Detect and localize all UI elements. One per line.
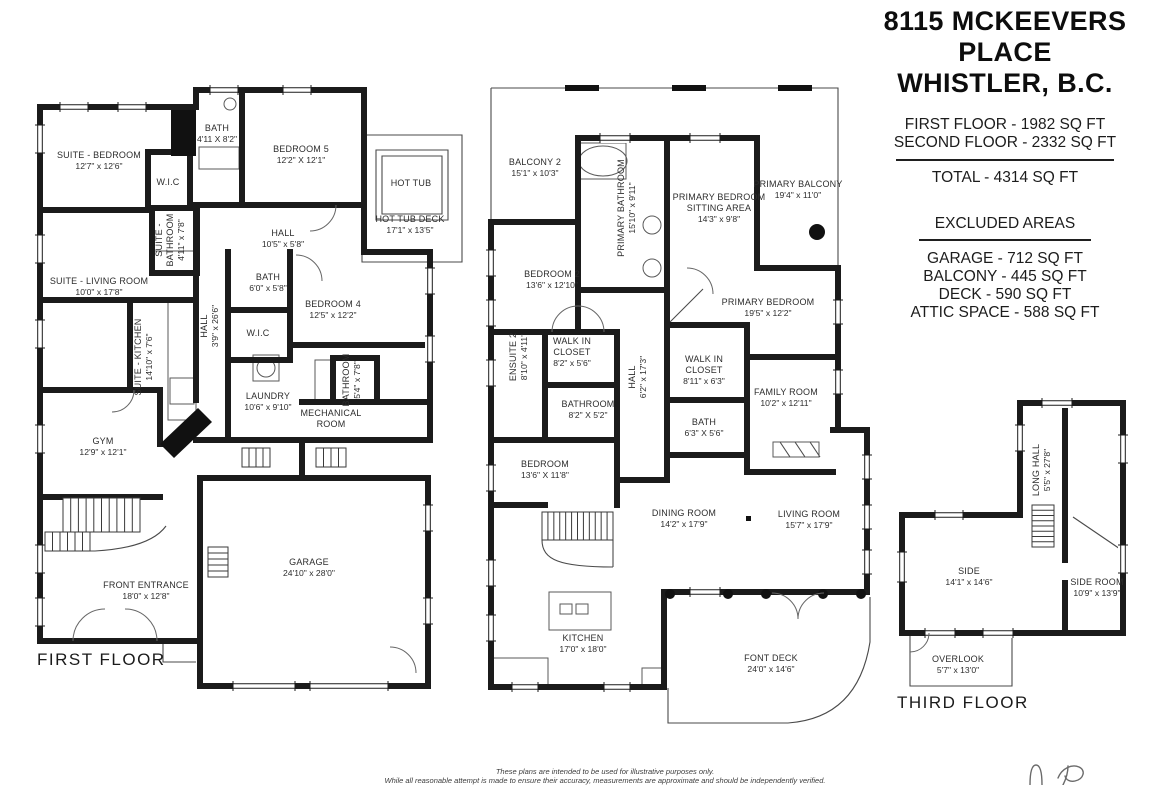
excluded-garage: GARAGE - 712 SQ FT <box>842 250 1168 268</box>
room-label: SIDE ROOM <box>1070 577 1123 587</box>
room-dimensions: 8'2" x 5'6" <box>553 358 591 368</box>
room-label: SUITE - BEDROOM <box>57 150 141 160</box>
room-dimensions: 15'1" x 10'3" <box>511 168 558 178</box>
room-label: PRIMARY BEDROOM <box>673 192 766 202</box>
excluded-attic: ATTIC SPACE - 588 SQ FT <box>842 304 1168 322</box>
excluded-balcony: BALCONY - 445 SQ FT <box>842 268 1168 286</box>
title-block: 8115 MCKEEVERS PLACE WHISTLER, B.C. FIRS… <box>842 6 1168 322</box>
room-label: SIDE <box>958 566 980 576</box>
property-address: 8115 MCKEEVERS PLACE <box>842 6 1168 68</box>
room-label: DINING ROOM <box>652 508 716 518</box>
room-label: KITCHEN <box>563 633 604 643</box>
room-dimensions: 4'11" x 7'8" <box>176 219 186 261</box>
room-label: SITTING AREA <box>687 203 751 213</box>
floor-plan-sheet: SUITE - BEDROOM12'7" x 12'6"W.I.CBATH4'1… <box>0 0 1170 785</box>
total-area: TOTAL - 4314 SQ FT <box>842 169 1168 187</box>
room-label: HOT TUB DECK <box>375 214 444 224</box>
room-label: FAMILY ROOM <box>754 387 818 397</box>
room-dimensions: 14'10" x 7'6" <box>144 333 154 380</box>
room-dimensions: 17'1" x 13'5" <box>386 225 433 235</box>
signature-mark <box>1030 765 1083 785</box>
room-dimensions: 14'1" x 14'6" <box>945 577 992 587</box>
property-city: WHISTLER, B.C. <box>842 68 1168 99</box>
room-label: WALK IN <box>553 336 591 346</box>
room-label: FONT DECK <box>744 653 798 663</box>
room-dimensions: 5'5" x 27'8" <box>1042 449 1052 491</box>
excluded-deck: DECK - 590 SQ FT <box>842 286 1168 304</box>
floor-label: FIRST FLOOR <box>37 650 166 669</box>
room-dimensions: 12'2" X 12'1" <box>277 155 326 165</box>
room-label: BATHROOM <box>165 214 175 267</box>
room-label: BALCONY 2 <box>509 157 561 167</box>
room-dimensions: 18'0" x 12'8" <box>122 591 169 601</box>
room-dimensions: 10'6" x 9'10" <box>244 402 291 412</box>
room-dimensions: 6'0" x 5'8" <box>249 283 287 293</box>
room-label: BATHROOM <box>562 399 615 409</box>
room-label: FRONT ENTRANCE <box>103 580 189 590</box>
room-dimensions: 19'4" x 11'0" <box>775 190 822 200</box>
room-label: HALL <box>271 228 294 238</box>
room-dimensions: 15'7" x 17'9" <box>785 520 832 530</box>
room-dimensions: 12'5" x 12'2" <box>309 310 356 320</box>
disclaimer-line1: These plans are intended to be used for … <box>355 767 855 776</box>
room-label: LONG HALL <box>1031 444 1041 496</box>
room-label: BEDROOM 5 <box>273 144 329 154</box>
room-label: BATH <box>256 272 280 282</box>
room-label: OVERLOOK <box>932 654 984 664</box>
room-label: BEDROOM 2 <box>524 269 580 279</box>
room-label: CLOSET <box>685 365 723 375</box>
divider-line <box>919 239 1091 241</box>
room-label: PRIMARY BEDROOM <box>722 297 815 307</box>
first-floor-area: FIRST FLOOR - 1982 SQ FT <box>842 116 1168 134</box>
room-label: SUITE - LIVING ROOM <box>50 276 148 286</box>
room-label: PRIMARY BATHROOM <box>616 159 626 257</box>
room-dimensions: 5'4" x 7'8" <box>352 361 362 399</box>
room-label: SUITE - <box>154 223 164 256</box>
room-dimensions: 6'3" X 5'6" <box>684 428 723 438</box>
disclaimer: These plans are intended to be used for … <box>355 767 855 785</box>
room-dimensions: 13'6" x 12'10" <box>526 280 578 290</box>
room-dimensions: 13'6" X 11'8" <box>521 470 569 480</box>
room-dimensions: 10'9" x 13'9" <box>1073 588 1120 598</box>
floor-areas: FIRST FLOOR - 1982 SQ FT SECOND FLOOR - … <box>842 116 1168 152</box>
room-label: MECHANICAL <box>300 408 361 418</box>
floor-label: THIRD FLOOR <box>897 693 1029 712</box>
room-label: SUITE - KITCHEN <box>133 318 143 395</box>
room-label: W.I.C <box>157 177 180 187</box>
room-label: W.I.C <box>247 328 270 338</box>
second-floor-area: SECOND FLOOR - 2332 SQ FT <box>842 134 1168 152</box>
room-label: HOT TUB <box>391 178 432 188</box>
room-label: BEDROOM <box>521 459 569 469</box>
excluded-areas-title: EXCLUDED AREAS <box>842 215 1168 233</box>
room-label: WALK IN <box>685 354 723 364</box>
disclaimer-line2: While all reasonable attempt is made to … <box>355 776 855 785</box>
room-label: GYM <box>92 436 113 446</box>
room-label: PRIMARY BALCONY <box>753 179 842 189</box>
room-dimensions: 12'9" x 12'1" <box>79 447 126 457</box>
room-label: LAUNDRY <box>246 391 290 401</box>
room-dimensions: 24'0" x 14'6" <box>747 664 794 674</box>
room-label: GARAGE <box>289 557 329 567</box>
room-dimensions: 8'10" x 4'11" <box>519 334 529 381</box>
room-dimensions: 15'10" x 9'11" <box>627 182 637 233</box>
third-floor-plan <box>897 398 1128 686</box>
room-dimensions: 5'7" x 13'0" <box>937 665 979 675</box>
room-dimensions: 10'0" x 17'8" <box>75 287 122 297</box>
room-label: BEDROOM 4 <box>305 299 361 309</box>
room-label: CLOSET <box>553 347 591 357</box>
room-label: ENSUITE 2 <box>508 333 518 381</box>
room-dimensions: 10'2" x 12'11" <box>760 398 811 408</box>
first-floor-plan <box>35 85 462 691</box>
room-label: LIVING ROOM <box>778 509 840 519</box>
room-dimensions: 17'0" x 18'0" <box>559 644 606 654</box>
room-label: HALL <box>199 314 209 337</box>
room-label: ROOM <box>317 419 346 429</box>
divider-line <box>896 159 1114 161</box>
room-label: BATH <box>205 123 229 133</box>
room-dimensions: 14'3" x 9'8" <box>698 214 740 224</box>
room-label: BATHROOM <box>341 354 351 407</box>
room-dimensions: 3'9" x 26'6" <box>210 305 220 347</box>
room-dimensions: 8'11" x 6'3" <box>683 376 725 386</box>
room-label: HALL <box>627 365 637 388</box>
room-dimensions: 4'11 X 8'2" <box>197 134 237 144</box>
room-dimensions: 12'7" x 12'6" <box>75 161 122 171</box>
room-dimensions: 10'5" x 5'8" <box>262 239 304 249</box>
room-dimensions: 14'2" x 17'9" <box>660 519 707 529</box>
room-label: BATH <box>692 417 716 427</box>
room-dimensions: 6'2" x 17'3" <box>638 356 648 398</box>
room-dimensions: 24'10" x 28'0" <box>283 568 335 578</box>
room-dimensions: 8'2" X 5'2" <box>568 410 607 420</box>
excluded-areas-list: GARAGE - 712 SQ FT BALCONY - 445 SQ FT D… <box>842 250 1168 322</box>
room-dimensions: 19'5" x 12'2" <box>744 308 791 318</box>
